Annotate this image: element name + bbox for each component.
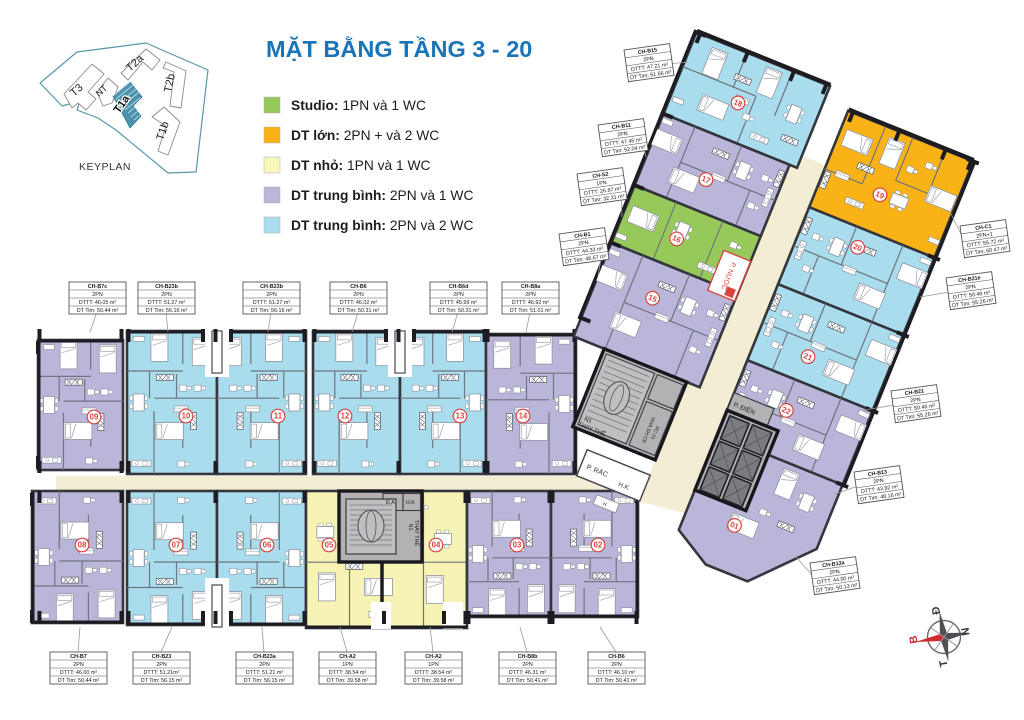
svg-text:03: 03	[513, 541, 522, 550]
svg-text:04: 04	[432, 541, 441, 550]
svg-text:DTTT: 46.05 m²: DTTT: 46.05 m²	[79, 300, 117, 306]
svg-text:2PN: 2PN	[73, 662, 84, 668]
svg-text:DTTT: 46.31 m²: DTTT: 46.31 m²	[509, 670, 547, 676]
svg-text:CH-B8a: CH-B8a	[521, 284, 541, 290]
svg-text:13: 13	[456, 412, 465, 421]
svg-text:DT nhỏ: 1PN và 1 WC: DT nhỏ: 1PN và 1 WC	[291, 158, 431, 173]
svg-text:DT Tim: 50.44 m²: DT Tim: 50.44 m²	[77, 308, 119, 314]
svg-text:11: 11	[274, 412, 283, 421]
svg-text:DT Tim: 56.16 m²: DT Tim: 56.16 m²	[146, 308, 188, 314]
svg-text:08: 08	[78, 541, 87, 550]
svg-text:DT Tim: 50.44 m²: DT Tim: 50.44 m²	[58, 678, 100, 684]
svg-text:CH-A2: CH-A2	[339, 654, 355, 660]
svg-text:10: 10	[182, 412, 191, 421]
svg-text:DTTT: 51.21m²: DTTT: 51.21m²	[144, 670, 180, 676]
svg-text:CH-B6d: CH-B6d	[449, 284, 469, 290]
svg-text:DT Tim: 50.31 m²: DT Tim: 50.31 m²	[338, 308, 380, 314]
svg-text:2PN: 2PN	[525, 292, 536, 298]
svg-text:DTTT: 46.10 m²: DTTT: 46.10 m²	[598, 670, 636, 676]
svg-text:KEYPLAN: KEYPLAN	[79, 161, 131, 173]
svg-text:2PN: 2PN	[611, 662, 622, 668]
svg-text:CH-B7: CH-B7	[70, 654, 86, 660]
svg-text:09: 09	[90, 413, 99, 422]
svg-text:CH-B8b: CH-B8b	[518, 654, 538, 660]
svg-text:DTTT: 45.99 m²: DTTT: 45.99 m²	[440, 300, 478, 306]
svg-text:THAY THẾ: THAY THẾ	[413, 520, 420, 546]
svg-text:Đ.A: Đ.A	[386, 500, 395, 506]
svg-text:H.K: H.K	[406, 500, 415, 506]
svg-text:07: 07	[172, 541, 181, 550]
svg-text:CH-B7c: CH-B7c	[88, 284, 107, 290]
svg-text:02: 02	[594, 541, 603, 550]
svg-text:1PN: 1PN	[428, 662, 439, 668]
svg-text:2PN: 2PN	[161, 292, 172, 298]
svg-text:MẶT BẰNG TẦNG 3 - 20: MẶT BẰNG TẦNG 3 - 20	[266, 35, 532, 62]
svg-text:DTTT: 51.27 m²: DTTT: 51.27 m²	[253, 300, 291, 306]
svg-text:2PN: 2PN	[453, 292, 464, 298]
svg-text:DTTT: 51.21 m²: DTTT: 51.21 m²	[246, 670, 284, 676]
svg-text:2PN: 2PN	[156, 662, 167, 668]
svg-text:CH-B6: CH-B6	[350, 284, 366, 290]
svg-text:DT Tim: 50.31 m²: DT Tim: 50.31 m²	[438, 308, 480, 314]
svg-text:CH-B23a: CH-B23a	[253, 654, 276, 660]
svg-text:DT Tim: 51.01 m²: DT Tim: 51.01 m²	[510, 308, 552, 314]
svg-text:2PN: 2PN	[266, 292, 277, 298]
svg-text:05: 05	[325, 541, 334, 550]
svg-text:DTTT: 46.92 m²: DTTT: 46.92 m²	[512, 300, 550, 306]
svg-text:CH-B23b: CH-B23b	[260, 284, 283, 290]
svg-text:12: 12	[341, 412, 350, 421]
svg-text:DTTT: 51.27 m²: DTTT: 51.27 m²	[148, 300, 186, 306]
svg-text:DT Tim: 39.58 m²: DT Tim: 39.58 m²	[327, 678, 369, 684]
svg-text:DT Tim: 56.16 m²: DT Tim: 56.16 m²	[251, 308, 293, 314]
svg-text:N1: N1	[407, 524, 413, 531]
svg-text:DT Tim: 56.15 m²: DT Tim: 56.15 m²	[244, 678, 286, 684]
svg-text:CH-A2: CH-A2	[425, 654, 441, 660]
svg-text:Studio: 1PN và 1 WC: Studio: 1PN và 1 WC	[291, 98, 426, 113]
svg-text:DTTT: 38.54 m²: DTTT: 38.54 m²	[415, 670, 453, 676]
svg-text:2PN: 2PN	[353, 292, 364, 298]
svg-text:06: 06	[263, 541, 272, 550]
svg-text:2PN: 2PN	[259, 662, 270, 668]
svg-text:DT trung bình: 2PN và 1 WC: DT trung bình: 2PN và 1 WC	[291, 188, 473, 203]
svg-text:DT trung bình: 2PN và 2 WC: DT trung bình: 2PN và 2 WC	[291, 218, 473, 233]
svg-text:DT Tim: 50.41 m²: DT Tim: 50.41 m²	[507, 678, 549, 684]
svg-text:DT Tim: 56.15 m²: DT Tim: 56.15 m²	[141, 678, 183, 684]
svg-text:CH-B6: CH-B6	[608, 654, 624, 660]
svg-text:14: 14	[519, 412, 528, 421]
svg-text:DT Tim: 50.41 m²: DT Tim: 50.41 m²	[596, 678, 638, 684]
svg-text:DTTT: 46.02 m²: DTTT: 46.02 m²	[340, 300, 378, 306]
svg-text:DT lớn: 2PN + và 2 WC: DT lớn: 2PN + và 2 WC	[291, 128, 439, 143]
svg-text:2PN: 2PN	[92, 292, 103, 298]
svg-text:2PN: 2PN	[522, 662, 533, 668]
svg-text:DTTT: 46.00 m²: DTTT: 46.00 m²	[60, 670, 98, 676]
svg-text:DT Tim: 39.58 m²: DT Tim: 39.58 m²	[413, 678, 455, 684]
svg-text:CH-B23: CH-B23	[152, 654, 171, 660]
svg-text:CH-B23b: CH-B23b	[155, 284, 178, 290]
svg-text:1PN: 1PN	[342, 662, 353, 668]
svg-text:DTTT: 38.54 m²: DTTT: 38.54 m²	[329, 670, 367, 676]
